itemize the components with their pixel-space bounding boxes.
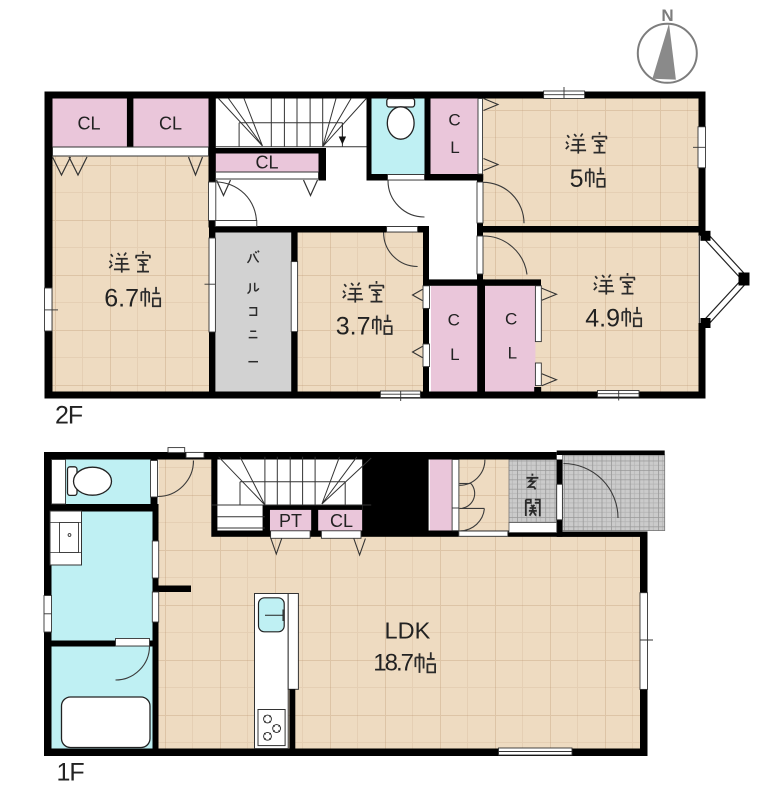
svg-text:5: 5 [570,165,584,193]
svg-text:C: C [448,311,460,330]
svg-text:4.9: 4.9 [585,305,620,333]
svg-text:2F: 2F [55,402,83,430]
svg-text:18.7: 18.7 [373,650,413,677]
svg-text:PT: PT [279,511,302,531]
svg-text:LDK: LDK [385,618,431,644]
svg-text:CL: CL [255,153,278,173]
svg-text:L: L [450,138,459,157]
svg-text:1F: 1F [57,759,85,787]
svg-text:CL: CL [330,511,353,531]
svg-text:C: C [505,310,517,329]
svg-text:L: L [508,343,517,362]
svg-text:3.7: 3.7 [336,313,371,341]
svg-text:CL: CL [159,114,182,134]
svg-text:6.7: 6.7 [104,285,139,313]
svg-text:C: C [448,111,460,130]
svg-text:L: L [450,345,459,364]
svg-text:N: N [661,6,673,25]
svg-text:CL: CL [77,114,100,134]
